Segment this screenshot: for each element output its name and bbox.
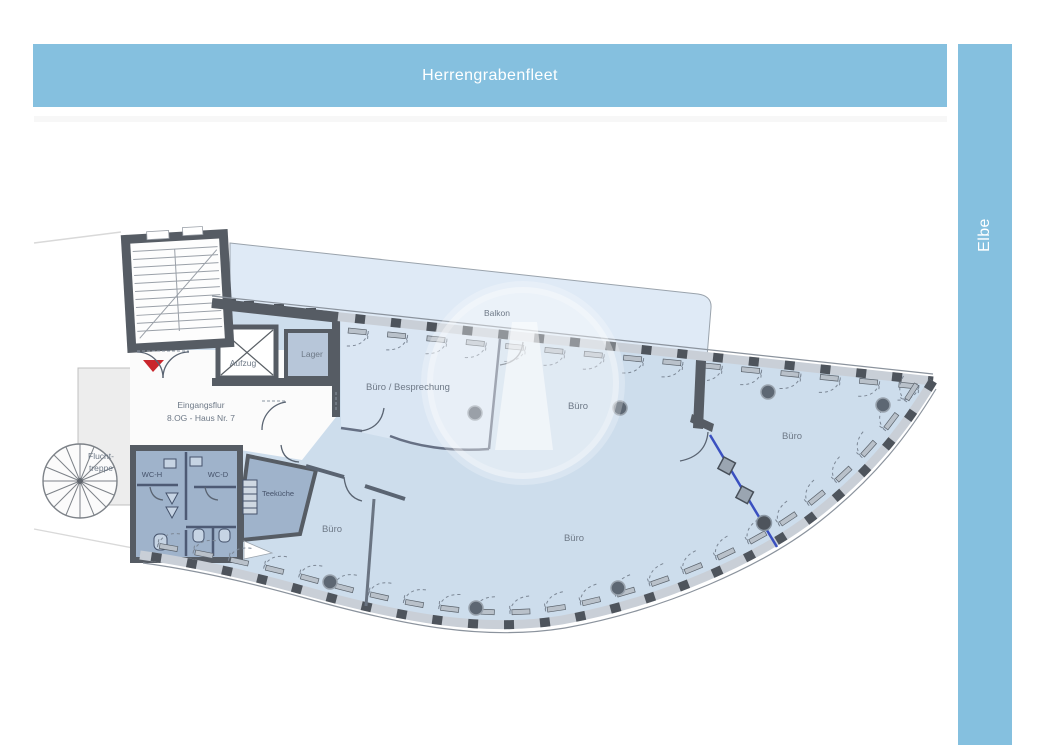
room-label-office-top: Büro (568, 401, 588, 412)
room-label-entrance-1: Eingangsflur (177, 400, 224, 410)
room-label-kitchen: Teeküche (262, 489, 294, 498)
floorplan-drawing: Balkon Büro / Besprechung Büro Büro Büro… (0, 0, 1051, 745)
stairwell (121, 225, 235, 353)
floorplan-page: Herrengrabenfleet Elbe (0, 0, 1051, 745)
room-label-office-right: Büro (782, 431, 802, 442)
room-label-office-small: Büro (322, 524, 342, 535)
wc-block (133, 448, 240, 560)
room-label-escape-1: Flucht- (88, 451, 114, 461)
room-label-meeting: Büro / Besprechung (366, 382, 450, 393)
room-label-elevator: Aufzug (230, 358, 257, 368)
room-label-balcony: Balkon (484, 308, 510, 318)
room-label-office-main: Büro (564, 533, 584, 544)
room-label-entrance-2: 8.OG - Haus Nr. 7 (167, 413, 235, 423)
room-label-escape-2: treppe (89, 463, 113, 473)
watermark-logo (427, 287, 619, 479)
room-label-wc-men: WC-H (142, 470, 162, 479)
room-label-storage: Lager (301, 349, 323, 359)
room-label-wc-women: WC-D (208, 470, 229, 479)
